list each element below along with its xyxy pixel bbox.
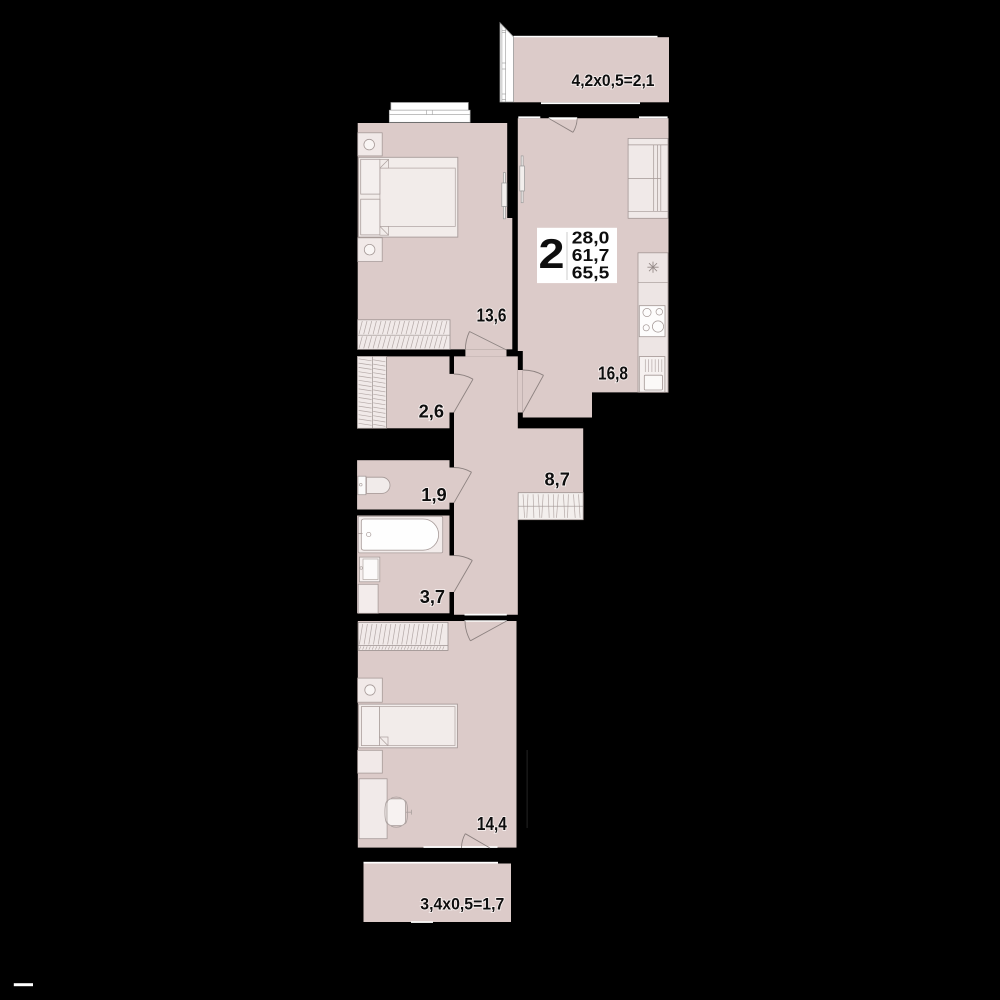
svg-text:13,6: 13,6 <box>477 305 507 326</box>
svg-text:2,6: 2,6 <box>419 400 444 421</box>
svg-text:16,8: 16,8 <box>598 363 628 384</box>
svg-text:8,7: 8,7 <box>544 469 569 490</box>
svg-text:3,4x0,5=1,7: 3,4x0,5=1,7 <box>420 895 504 914</box>
svg-text:4,2x0,5=2,1: 4,2x0,5=2,1 <box>572 71 655 90</box>
svg-text:65,5: 65,5 <box>572 263 610 283</box>
svg-text:1,9: 1,9 <box>421 484 446 505</box>
svg-text:3,7: 3,7 <box>420 586 445 607</box>
svg-text:14,4: 14,4 <box>477 813 508 834</box>
svg-text:2: 2 <box>539 230 565 277</box>
